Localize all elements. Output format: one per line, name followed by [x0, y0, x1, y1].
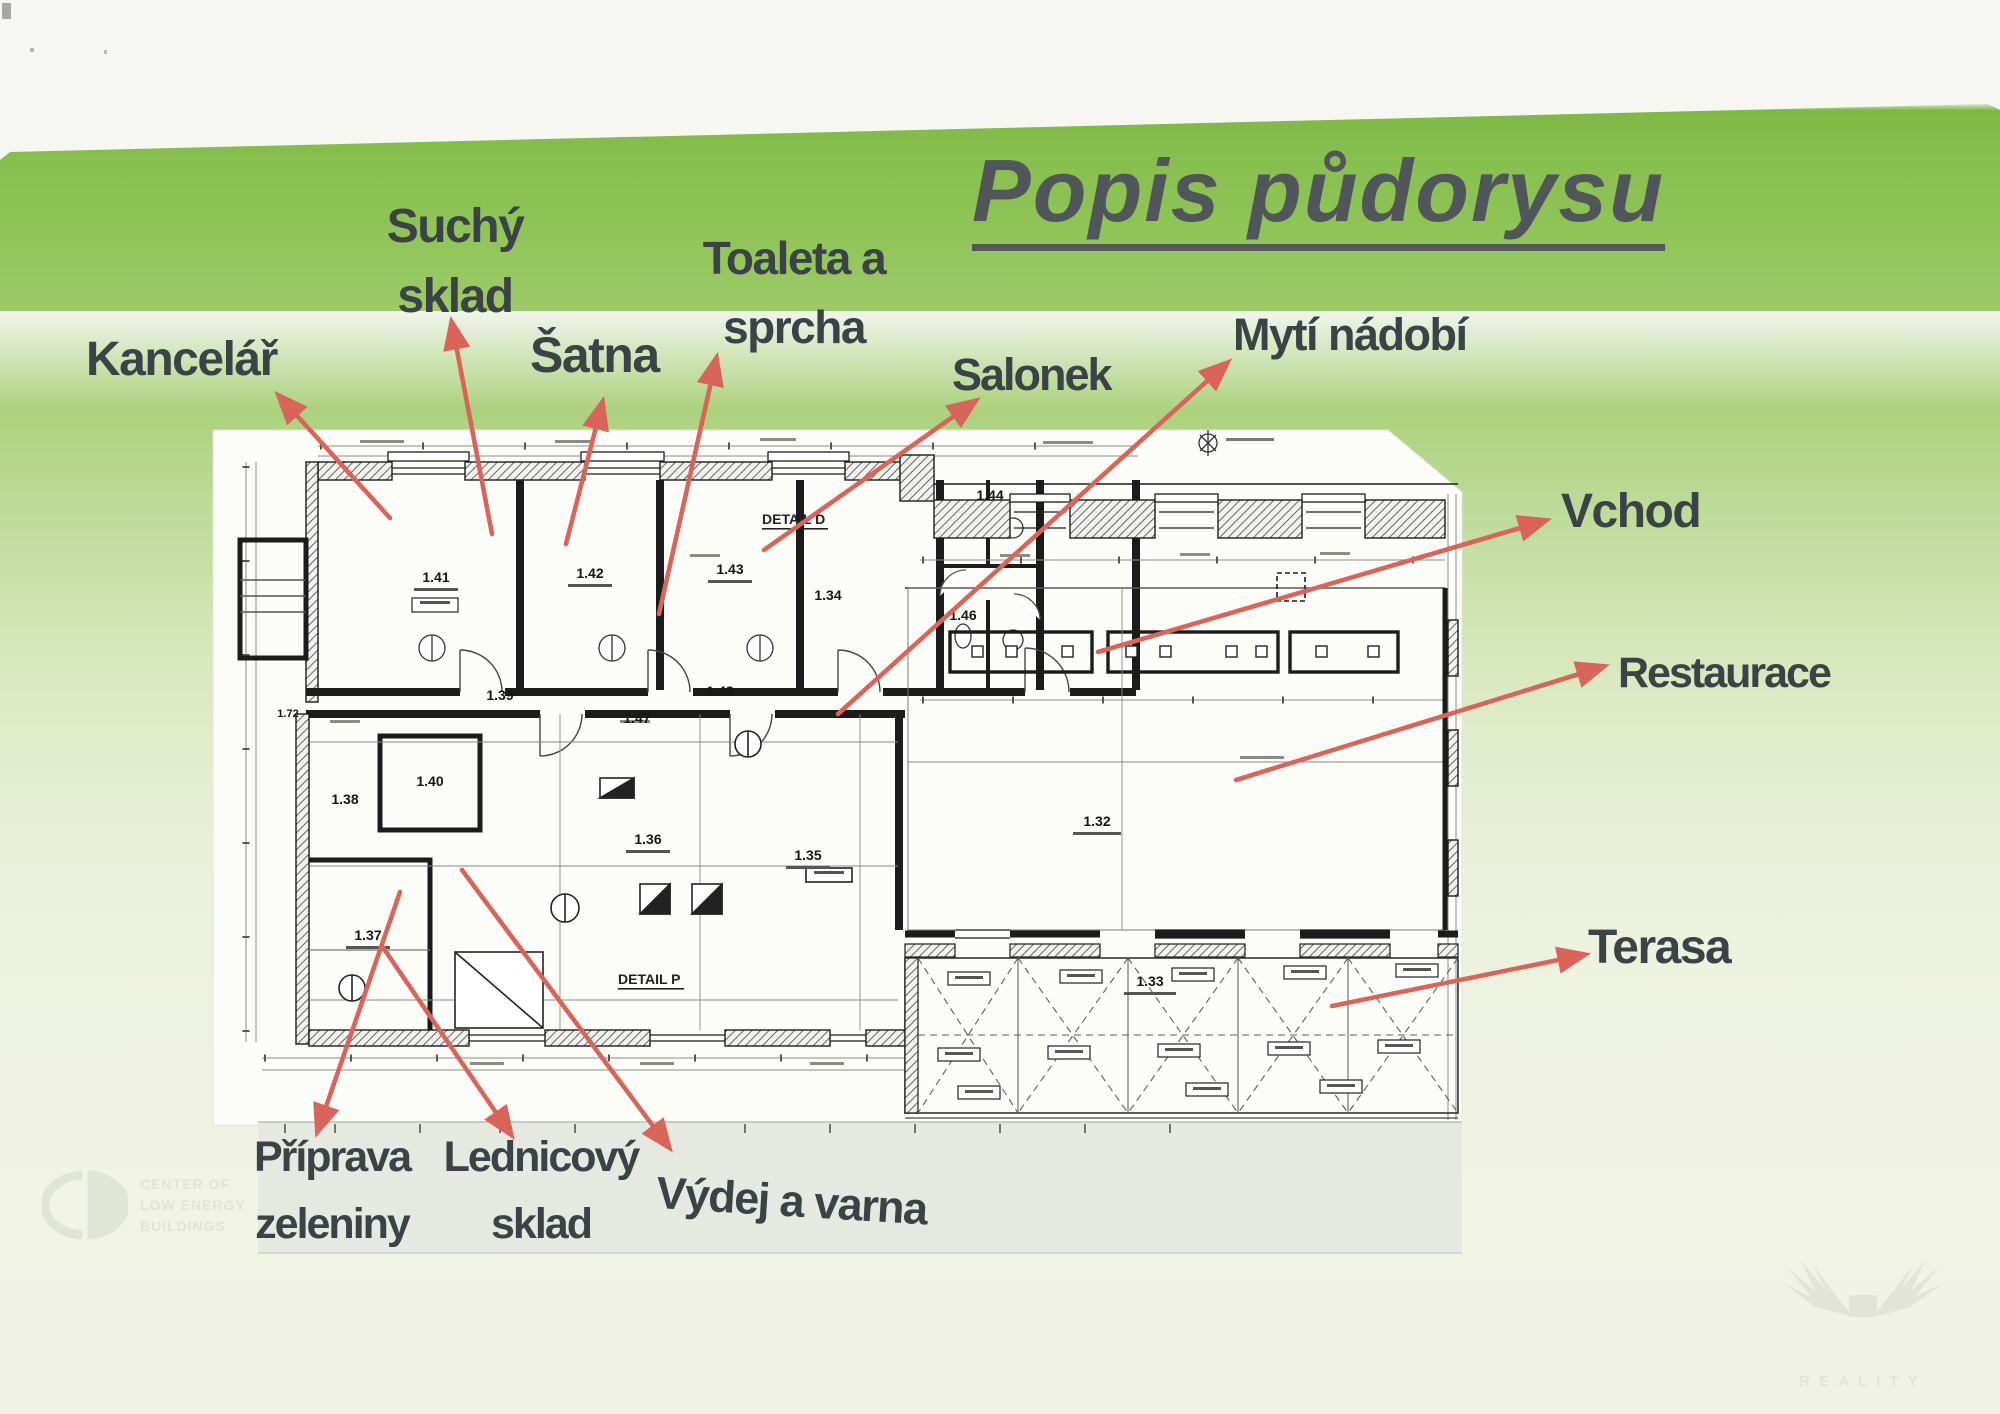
- label-vchod: Vchod: [1561, 486, 1700, 539]
- svg-text:1.32: 1.32: [1083, 813, 1110, 829]
- svg-text:1.44: 1.44: [976, 487, 1003, 503]
- label-toaleta-sprcha: Toaleta a sprcha: [652, 224, 936, 362]
- svg-text:DETAIL P: DETAIL P: [618, 971, 681, 987]
- svg-text:1.33: 1.33: [1136, 973, 1163, 989]
- label-satna: Šatna: [530, 328, 659, 383]
- corner-watermark: REALITY: [1748, 1255, 1978, 1405]
- label-lednicovy-sklad: Lednicový sklad: [436, 1124, 646, 1257]
- cleb-logo-watermark: CENTER OF LOW ENERGY BUILDINGS: [42, 1150, 272, 1260]
- svg-text:1.40: 1.40: [416, 773, 443, 789]
- page-title: Popis půdorysu: [972, 140, 1665, 242]
- svg-text:1.72: 1.72: [277, 708, 298, 720]
- svg-text:1.37: 1.37: [354, 927, 381, 943]
- svg-text:1.39: 1.39: [486, 687, 513, 703]
- wings-icon: [1753, 1255, 1973, 1325]
- label-suchy-sklad: Suchý sklad: [350, 192, 560, 331]
- svg-text:1.48: 1.48: [706, 683, 733, 699]
- svg-text:1.42: 1.42: [576, 565, 603, 581]
- svg-text:1.41: 1.41: [422, 569, 449, 585]
- svg-text:1.34: 1.34: [814, 587, 841, 603]
- label-kancelar: Kancelář: [86, 334, 277, 387]
- svg-text:1.47: 1.47: [623, 710, 650, 726]
- svg-text:1.36: 1.36: [634, 831, 661, 847]
- svg-text:1.38: 1.38: [331, 791, 358, 807]
- label-salonek: Salonek: [952, 350, 1111, 400]
- label-restaurace: Restaurace: [1618, 650, 1830, 697]
- cleb-logo-icon: [42, 1162, 128, 1248]
- svg-text:1.35: 1.35: [794, 847, 821, 863]
- svg-text:1.43: 1.43: [716, 561, 743, 577]
- scanned-floor-plan-page: { "page": { "title": "Popis půdorysu", "…: [0, 0, 2000, 1414]
- label-terasa: Terasa: [1588, 922, 1730, 975]
- label-myti-nadobi: Mytí nádobí: [1233, 310, 1466, 360]
